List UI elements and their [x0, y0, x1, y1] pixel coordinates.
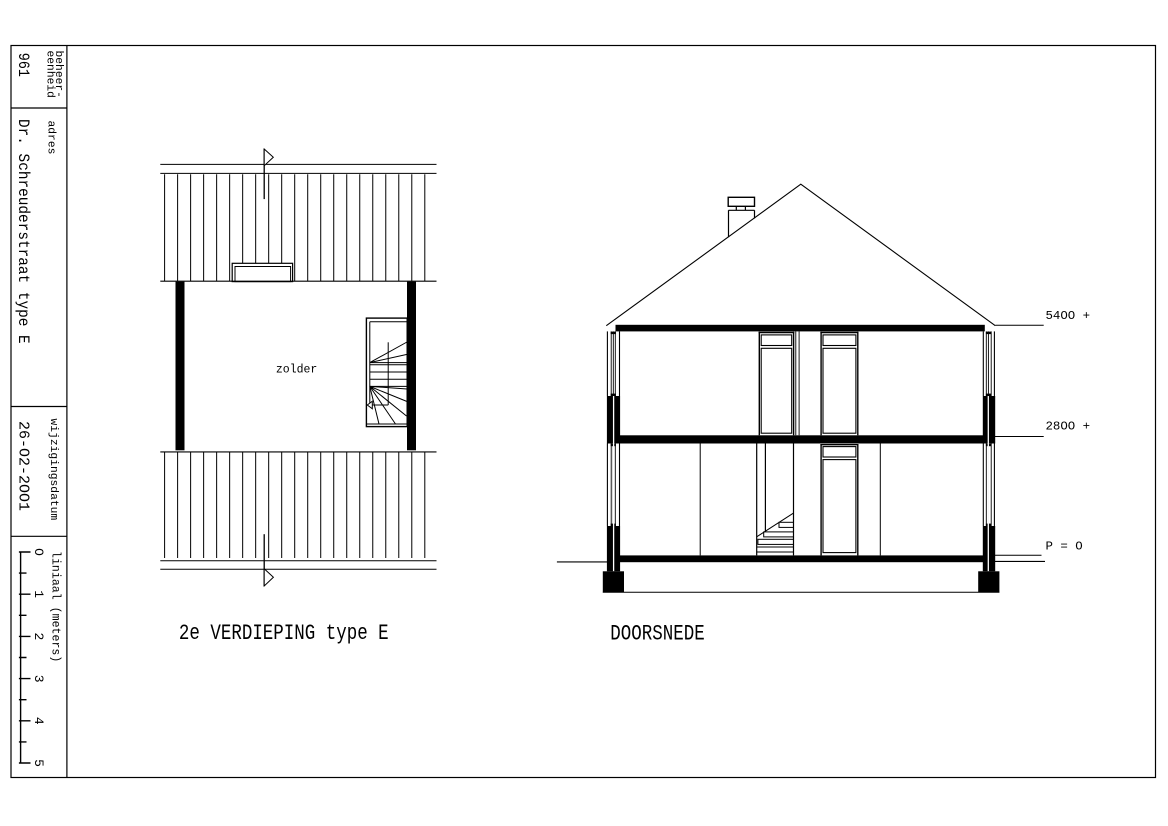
- svg-text:eenheid: eenheid: [44, 51, 56, 98]
- svg-text:P = O: P = O: [1046, 539, 1083, 553]
- svg-text:54OO +: 54OO +: [1046, 309, 1091, 323]
- svg-text:zolder: zolder: [276, 364, 317, 377]
- svg-text:1: 1: [31, 590, 46, 598]
- svg-text:3: 3: [31, 675, 46, 683]
- svg-text:2: 2: [31, 632, 46, 640]
- svg-text:28OO +: 28OO +: [1046, 419, 1091, 433]
- svg-text:5: 5: [31, 759, 46, 767]
- svg-text:4: 4: [31, 717, 46, 725]
- svg-text:O: O: [31, 548, 46, 556]
- svg-text:liniaal (meters): liniaal (meters): [49, 551, 62, 662]
- svg-text:Dr. Schreuderstraat type E: Dr. Schreuderstraat type E: [14, 119, 33, 344]
- svg-text:2e VERDIEPING type E: 2e VERDIEPING type E: [179, 620, 389, 645]
- svg-text:DOORSNEDE: DOORSNEDE: [610, 620, 704, 645]
- svg-text:26-O2-2OO1: 26-O2-2OO1: [15, 421, 32, 511]
- svg-text:adres: adres: [45, 121, 57, 155]
- svg-text:961: 961: [13, 53, 30, 77]
- svg-text:wijzigingsdatum: wijzigingsdatum: [47, 419, 59, 521]
